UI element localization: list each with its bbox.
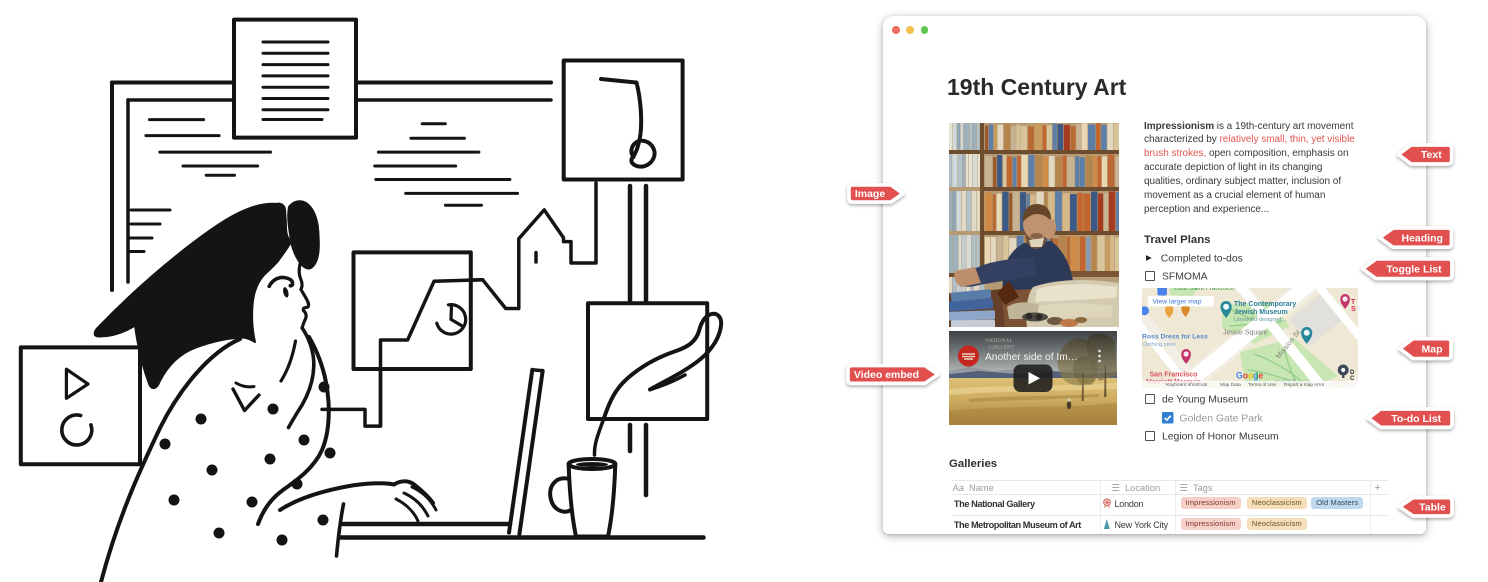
svg-text:GALLERY: GALLERY [989,345,1014,351]
svg-text:Jewish Museum: Jewish Museum [1234,309,1288,316]
svg-text:Report a map error: Report a map error [1284,382,1325,388]
svg-text:Another side of Im…: Another side of Im… [985,352,1078,363]
svg-text:e: e [1259,371,1264,381]
svg-text:NATIONAL: NATIONAL [985,338,1013,344]
svg-text:T: T [1351,299,1356,306]
svg-text:S: S [1351,306,1356,313]
svg-text:Libeskind-designed…: Libeskind-designed… [1234,317,1287,323]
svg-text:Map Data: Map Data [1220,382,1241,388]
svg-text:The Contemporary: The Contemporary [1234,301,1296,308]
svg-text:Club Saint Francisco: Club Saint Francisco [1174,288,1234,292]
svg-text:Terms of Use: Terms of Use [1248,382,1277,388]
svg-text:View larger map: View larger map [1153,299,1202,306]
svg-text:Keyboard shortcuts: Keyboard shortcuts [1166,382,1208,388]
svg-text:San Francisco: San Francisco [1150,372,1198,379]
svg-text:Clothing store: Clothing store [1142,342,1176,348]
svg-text:Jessie Square: Jessie Square [1223,330,1267,337]
svg-text:Image: Image [855,188,886,200]
svg-text:Ross Dress for Less: Ross Dress for Less [1142,334,1208,341]
